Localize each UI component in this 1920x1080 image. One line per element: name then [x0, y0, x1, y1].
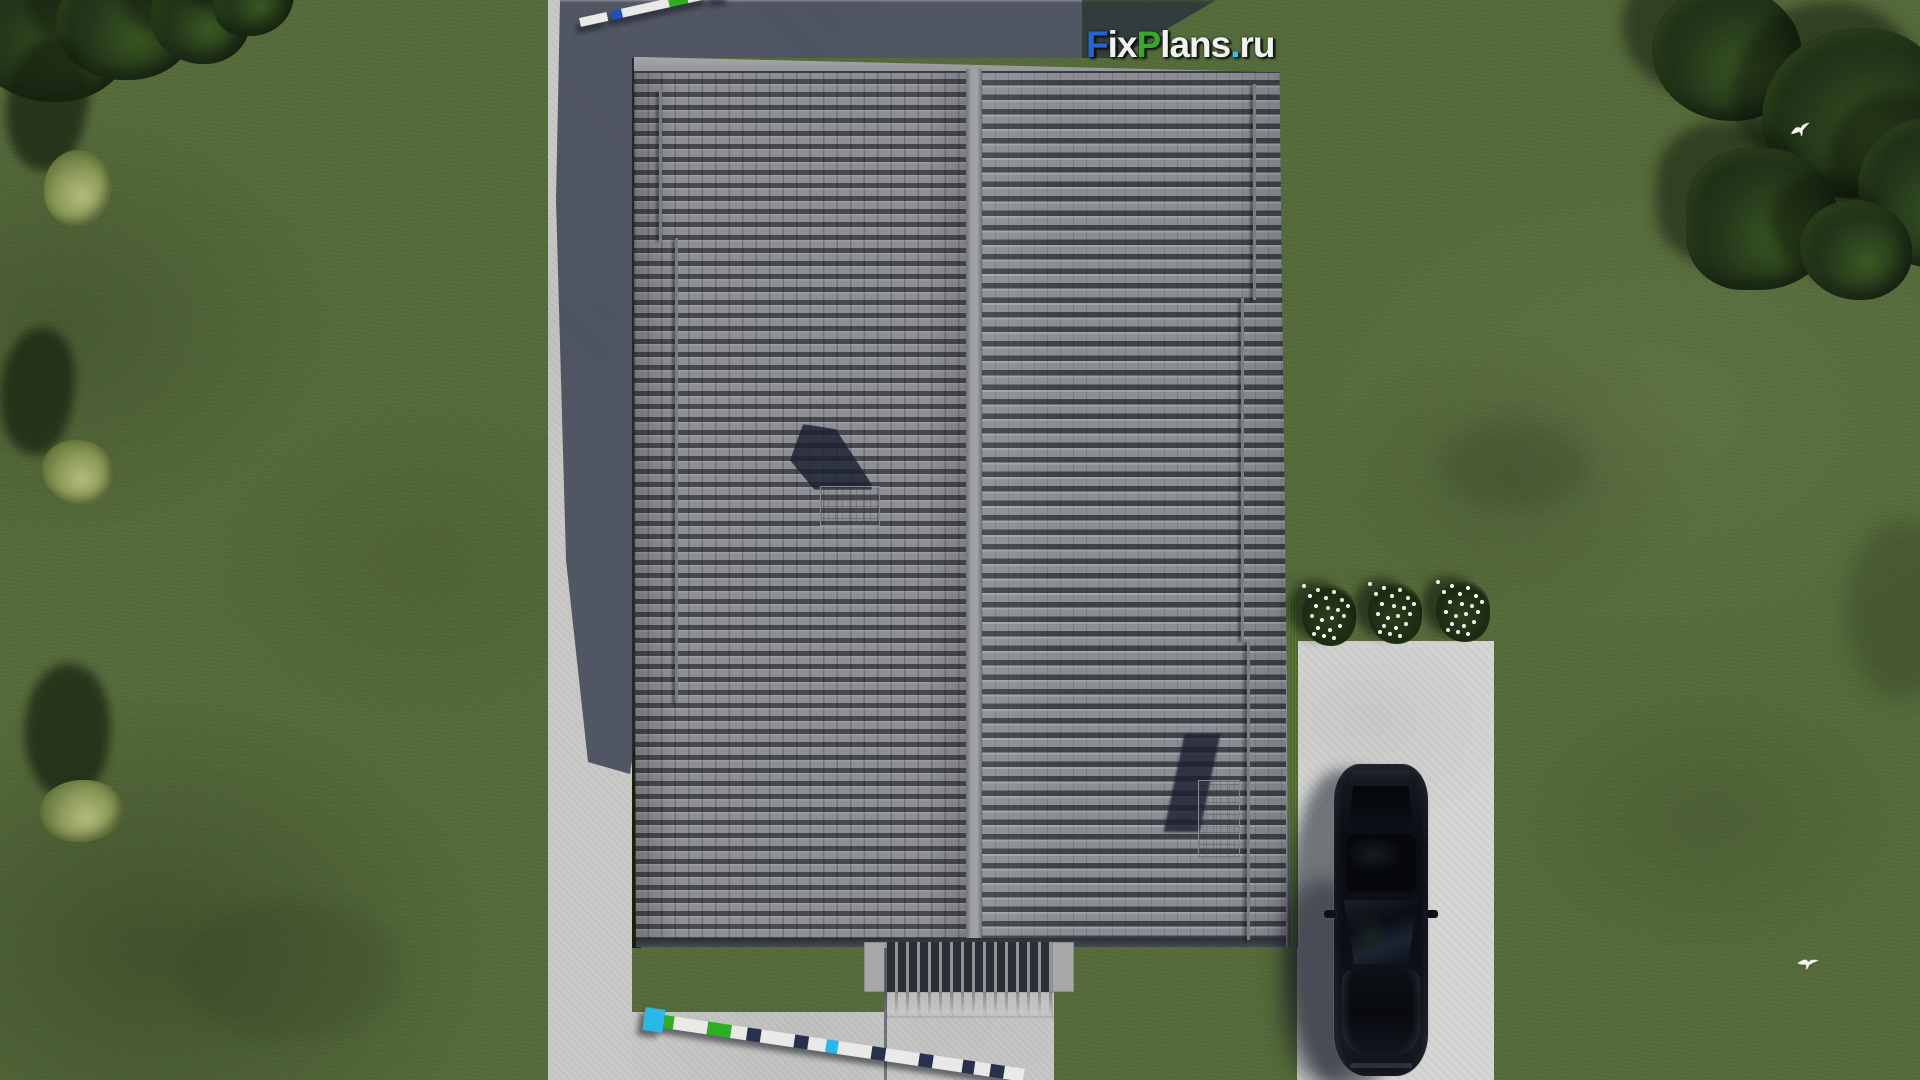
survey-marker-segment — [642, 1008, 665, 1033]
car-front-bumper — [1350, 1063, 1412, 1068]
watermark-logo: FixPlans.ru — [1086, 24, 1275, 66]
flower-bush — [1436, 580, 1490, 642]
logo-letter: P — [1136, 24, 1160, 65]
tree — [214, 0, 294, 36]
car-windshield — [1344, 900, 1418, 964]
survey-marker-segment — [760, 1030, 780, 1046]
car-rear-deck — [1350, 770, 1412, 783]
aerial-render-scene: FixPlans.ru — [0, 0, 1920, 1080]
survey-marker-segment — [807, 1037, 827, 1053]
tree — [1800, 200, 1912, 300]
car-hood — [1342, 970, 1420, 1056]
car-rear-window — [1348, 786, 1414, 830]
survey-marker-segment — [1003, 1066, 1025, 1080]
survey-marker-segment — [837, 1041, 857, 1057]
bush — [40, 780, 124, 842]
roof-pipe — [675, 238, 678, 530]
flower-bush — [1302, 584, 1356, 646]
bush — [42, 440, 114, 504]
car-roof-panel — [1346, 834, 1416, 892]
roof-pipe — [659, 90, 662, 240]
survey-marker-segment — [884, 1048, 904, 1064]
roof-ridge — [966, 69, 982, 938]
roof-pipe — [1241, 298, 1244, 640]
black-car — [1334, 764, 1428, 1076]
bird-icon — [1795, 954, 1822, 978]
logo-letter: n — [1189, 24, 1211, 65]
survey-marker-segment — [673, 1017, 693, 1033]
logo-letter: x — [1117, 24, 1137, 65]
logo-letter: u — [1253, 24, 1275, 65]
grass-patch — [180, 900, 400, 1040]
flower-bush — [1368, 582, 1422, 644]
porch-louver-shadow — [884, 992, 1052, 1014]
roof-pipe — [1247, 640, 1250, 940]
chimney-left — [820, 486, 880, 526]
logo-letter: a — [1169, 24, 1189, 65]
logo-letter: s — [1211, 24, 1231, 65]
porch-post-left — [864, 942, 886, 992]
car-mirror-right — [1426, 910, 1438, 918]
grass-patch — [1440, 420, 1590, 510]
roof-pipe — [1253, 84, 1256, 300]
grass-patch — [1846, 520, 1920, 700]
chimney-right — [1198, 780, 1240, 858]
roof-pipe — [675, 530, 678, 702]
logo-letter: r — [1239, 24, 1252, 65]
bush — [44, 150, 112, 226]
logo-letter: i — [1108, 24, 1117, 65]
car-mirror-left — [1324, 910, 1336, 918]
porch-post-right — [1052, 942, 1074, 992]
logo-letter: F — [1086, 24, 1108, 65]
roof-slope-left — [634, 71, 966, 938]
porch-louvers — [884, 942, 1052, 992]
